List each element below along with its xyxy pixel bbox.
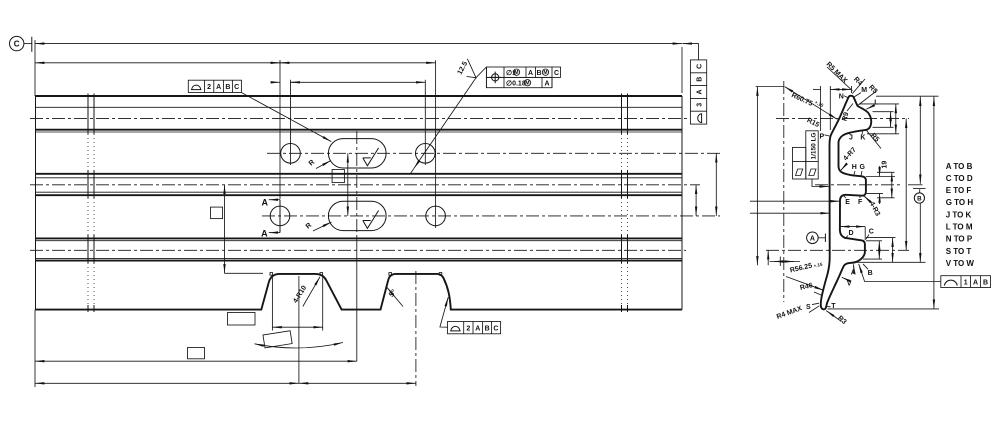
svg-text:R4 MAX: R4 MAX	[776, 305, 804, 321]
svg-text:C: C	[554, 70, 559, 77]
svg-text:L TO M: L TO M	[946, 223, 973, 232]
svg-text:R60.75: R60.75	[790, 92, 814, 108]
svg-text:V TO W: V TO W	[946, 259, 975, 268]
svg-text:C: C	[493, 325, 498, 332]
svg-text:G: G	[860, 164, 866, 171]
svg-text:+.15: +.15	[813, 261, 823, 268]
svg-text:1: 1	[964, 280, 968, 287]
svg-text:R9: R9	[841, 111, 850, 122]
svg-text:D: D	[849, 230, 854, 237]
svg-text:J: J	[849, 135, 853, 142]
svg-text:C: C	[696, 64, 703, 69]
svg-text:1/150 LG: 1/150 LG	[811, 132, 818, 159]
svg-text:4-R3: 4-R3	[868, 201, 881, 218]
svg-text:J TO K: J TO K	[946, 210, 972, 219]
svg-text:A: A	[216, 84, 221, 91]
svg-text:R5 MAX: R5 MAX	[825, 61, 849, 85]
svg-text:4-R7: 4-R7	[842, 146, 858, 162]
svg-text:B: B	[225, 84, 230, 91]
svg-text:C: C	[869, 229, 874, 236]
svg-text:A: A	[262, 197, 269, 207]
svg-text:2: 2	[466, 325, 470, 332]
svg-text:B: B	[983, 280, 988, 287]
svg-text:B: B	[917, 195, 922, 202]
svg-text:R4: R4	[852, 76, 863, 87]
svg-text:N: N	[839, 94, 844, 101]
svg-text:K: K	[860, 135, 865, 142]
svg-text:C TO D: C TO D	[946, 174, 973, 183]
svg-text:B: B	[536, 70, 541, 77]
svg-text:+.15: +.15	[814, 100, 825, 108]
svg-text:V: V	[847, 280, 852, 287]
svg-text:F: F	[858, 199, 863, 206]
svg-text:R: R	[308, 159, 316, 168]
svg-text:A: A	[973, 280, 978, 287]
svg-text:N TO P: N TO P	[946, 235, 973, 244]
svg-text:A: A	[696, 89, 703, 94]
svg-text:A: A	[261, 229, 268, 239]
svg-text:19: 19	[882, 161, 889, 169]
svg-text:C: C	[14, 40, 20, 49]
svg-text:2: 2	[207, 84, 211, 91]
svg-text:P: P	[820, 133, 825, 140]
svg-text:B: B	[485, 325, 490, 332]
svg-text:E: E	[845, 199, 850, 206]
svg-text:A TO B: A TO B	[946, 162, 973, 171]
svg-text:A: A	[528, 70, 533, 77]
svg-text:A: A	[810, 235, 815, 242]
svg-text:A: A	[851, 269, 856, 276]
svg-text:M: M	[525, 81, 529, 87]
svg-text:R3: R3	[836, 315, 847, 326]
svg-text:C: C	[234, 84, 239, 91]
svg-text:A: A	[544, 81, 549, 88]
svg-text:A: A	[475, 325, 480, 332]
svg-text:R15: R15	[806, 117, 821, 129]
svg-text:M: M	[861, 87, 867, 94]
svg-text:12.5: 12.5	[457, 61, 470, 76]
svg-text:3: 3	[696, 103, 703, 107]
svg-text:M: M	[543, 70, 547, 76]
svg-text:H: H	[852, 164, 857, 171]
svg-text:R46: R46	[799, 282, 813, 292]
svg-text:R56.25: R56.25	[789, 263, 813, 275]
svg-text:E TO F: E TO F	[946, 186, 972, 195]
svg-text:∅0.18: ∅0.18	[506, 80, 526, 88]
svg-text:M: M	[514, 70, 518, 76]
svg-text:B: B	[868, 270, 873, 277]
svg-text:S TO T: S TO T	[946, 247, 972, 256]
svg-text:R: R	[305, 222, 313, 231]
svg-text:G TO H: G TO H	[946, 198, 974, 207]
svg-text:B: B	[696, 77, 703, 82]
svg-text:S: S	[806, 304, 811, 311]
svg-text:L: L	[874, 100, 879, 107]
